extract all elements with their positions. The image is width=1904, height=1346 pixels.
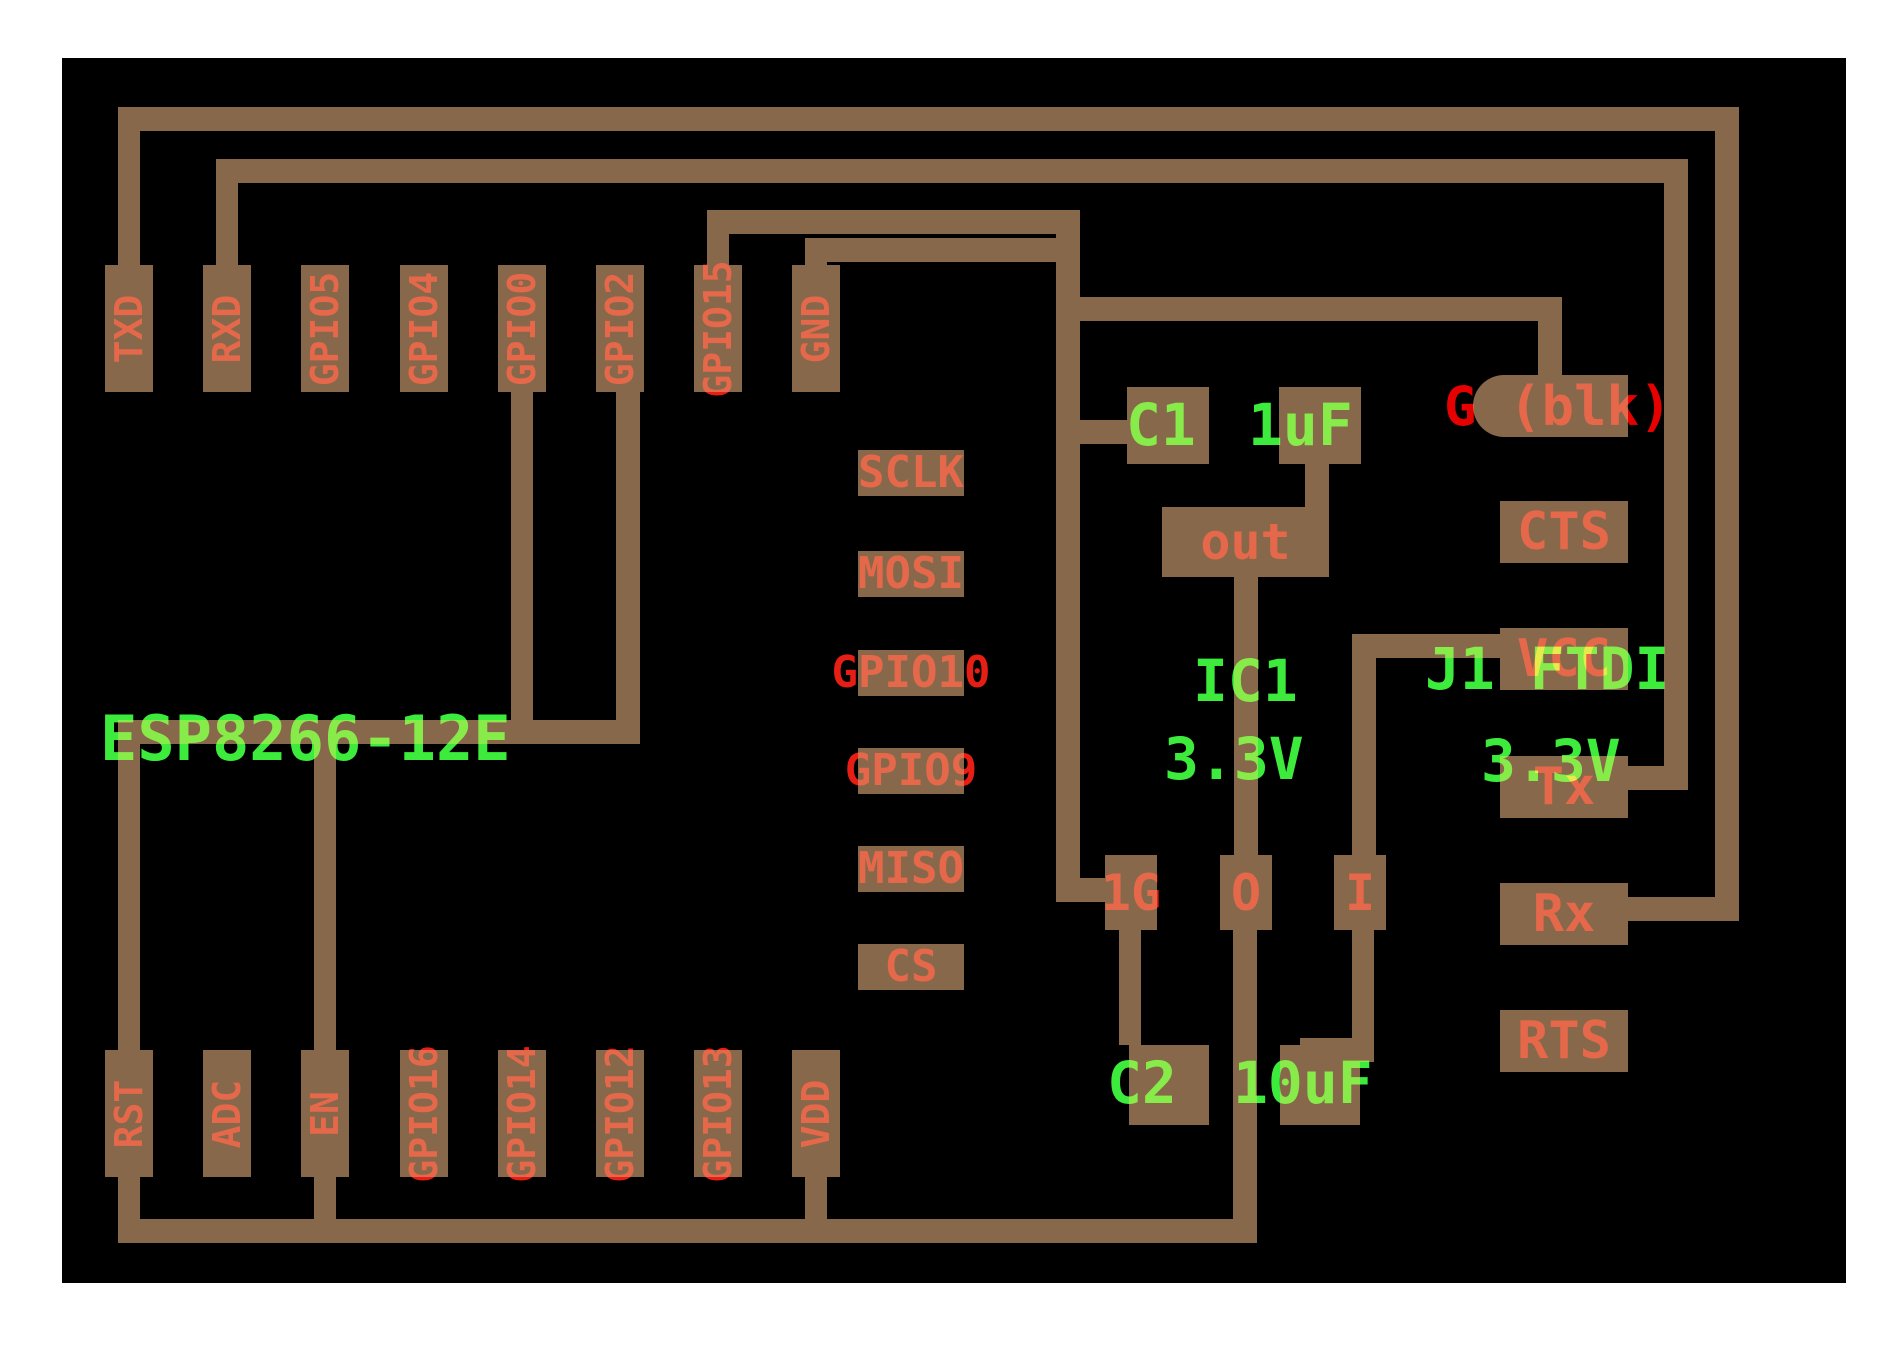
ftdi-pad-cts[interactable]: CTS [1500, 501, 1628, 563]
esp-pad-vdd[interactable]: VDD [792, 1050, 840, 1177]
ftdi-pad-ground-label: G (blk) [1444, 380, 1672, 434]
esp-pad-miso-label: MISO [858, 847, 964, 891]
esp-pad-gpio10[interactable]: GPIO10 [858, 650, 964, 696]
esp-pad-adc[interactable]: ADC [203, 1050, 251, 1177]
trace-gnd-horizontal[interactable] [805, 238, 1080, 262]
capacitor2-ref-label: C2 [1107, 1054, 1177, 1112]
esp-pad-gpio9-label: GPIO9 [845, 749, 977, 793]
esp-pad-gpio14[interactable]: GPIO14 [498, 1050, 546, 1177]
esp-pad-mosi[interactable]: MOSI [858, 551, 964, 597]
trace-gpio0-vertical[interactable] [511, 392, 533, 744]
trace-rst-top-vertical[interactable] [118, 744, 140, 1050]
trace-c1-to-out-vertical[interactable] [1305, 464, 1329, 507]
capacitor2-value-label: 10uF [1233, 1054, 1373, 1112]
esp-pad-gpio15-label: GPIO15 [699, 260, 737, 397]
esp-pad-gpio9[interactable]: GPIO9 [858, 748, 964, 794]
regulator-pin-o[interactable]: O [1220, 855, 1272, 930]
capacitor1-value-label: 1uF [1248, 396, 1353, 454]
esp-pad-gpio16[interactable]: GPIO16 [400, 1050, 448, 1177]
trace-txd-net-rx-connector[interactable] [1628, 897, 1739, 921]
esp-pad-gpio2[interactable]: GPIO2 [596, 265, 644, 392]
esp-pad-gpio12[interactable]: GPIO12 [596, 1050, 644, 1177]
trace-bottom-bus-horizontal[interactable] [118, 1219, 1257, 1243]
trace-rxd-net-tx-connector[interactable] [1628, 766, 1688, 790]
esp-pad-gpio4-label: GPIO4 [405, 271, 443, 385]
esp-pad-cs[interactable]: CS [858, 944, 964, 990]
esp-pad-gpio12-label: GPIO12 [601, 1045, 639, 1182]
trace-rxd-pad-stub[interactable] [216, 159, 238, 265]
ftdi-pad-cts-label: CTS [1517, 506, 1611, 558]
ftdi-pad-rts[interactable]: RTS [1500, 1010, 1628, 1072]
trace-txd-net-right-vertical[interactable] [1715, 107, 1739, 921]
esp-pad-sclk-label: SCLK [858, 451, 964, 495]
ftdi-pad-rts-label: RTS [1517, 1015, 1611, 1067]
trace-txd-net-top-horizontal[interactable] [118, 107, 1739, 131]
trace-rxd-net-top-horizontal[interactable] [216, 159, 1688, 183]
pcb-board: TXD RXD GPIO5 GPIO4 GPIO0 GPIO2 GPIO15 G… [62, 58, 1846, 1283]
regulator-out-pad-label: out [1200, 517, 1290, 567]
ftdi-pad-rx[interactable]: Rx [1500, 883, 1628, 945]
esp-pad-gpio5-label: GPIO5 [306, 271, 344, 385]
esp-pad-rst[interactable]: RST [105, 1050, 153, 1177]
trace-out-to-o-vertical[interactable] [1234, 577, 1258, 855]
esp-pad-vdd-label: VDD [797, 1079, 835, 1148]
esp-pad-gpio13[interactable]: GPIO13 [694, 1050, 742, 1177]
esp-pad-gnd-label: GND [797, 294, 835, 363]
ftdi-ref-label: J1 FTDI [1425, 640, 1669, 698]
regulator-ref-label: IC1 [1193, 652, 1298, 710]
esp-pad-adc-label: ADC [208, 1079, 246, 1148]
trace-txd-pad-stub[interactable] [118, 107, 140, 265]
regulator-pin-i[interactable]: I [1334, 855, 1386, 930]
esp-pad-txd[interactable]: TXD [105, 265, 153, 392]
esp-pad-rxd-label: RXD [208, 294, 246, 363]
trace-i-to-vcc-vertical[interactable] [1352, 634, 1376, 855]
trace-en-top-vertical[interactable] [314, 744, 336, 1050]
esp-pad-gpio5[interactable]: GPIO5 [301, 265, 349, 392]
regulator-value-label: 3.3V [1164, 730, 1304, 788]
regulator-pin-1g-label: 1G [1101, 868, 1161, 918]
capacitor1-ref-label: C1 [1126, 396, 1196, 454]
regulator-pin-1g[interactable]: 1G [1105, 855, 1157, 930]
esp-pad-gpio2-label: GPIO2 [601, 271, 639, 385]
esp-pad-en-label: EN [306, 1091, 344, 1137]
regulator-pin-o-label: O [1231, 868, 1261, 918]
esp-pad-mosi-label: MOSI [858, 552, 964, 596]
regulator-pin-i-label: I [1345, 868, 1375, 918]
esp-pad-gpio10-label: GPIO10 [832, 651, 991, 695]
trace-gpio15-horizontal[interactable] [707, 210, 1080, 234]
esp-module-label: ESP8266-12E [100, 708, 511, 770]
esp-pad-gnd[interactable]: GND [792, 265, 840, 392]
ftdi-value-label: 3.3V [1481, 732, 1621, 790]
esp-pad-gpio0[interactable]: GPIO0 [498, 265, 546, 392]
esp-pad-gpio16-label: GPIO16 [405, 1045, 443, 1182]
trace-gnd-gblk-vertical[interactable] [1538, 297, 1562, 375]
trace-vdd-bottom-stub[interactable] [805, 1177, 827, 1219]
esp-pad-sclk[interactable]: SCLK [858, 450, 964, 496]
esp-pad-gpio13-label: GPIO13 [699, 1045, 737, 1182]
trace-gnd-gblk-horizontal[interactable] [1080, 297, 1562, 321]
trace-gnd-c1-stub[interactable] [1080, 420, 1127, 444]
esp-pad-en[interactable]: EN [301, 1050, 349, 1177]
trace-gnd-main-vertical[interactable] [1056, 210, 1080, 902]
esp-pad-gpio14-label: GPIO14 [503, 1045, 541, 1182]
esp-pad-rst-label: RST [110, 1079, 148, 1148]
trace-rst-bottom-vertical[interactable] [118, 1177, 140, 1243]
esp-pad-cs-label: CS [885, 945, 938, 989]
trace-gpio2-vertical[interactable] [616, 392, 640, 744]
esp-pad-gpio15[interactable]: GPIO15 [694, 265, 742, 392]
esp-pad-rxd[interactable]: RXD [203, 265, 251, 392]
esp-pad-txd-label: TXD [110, 294, 148, 363]
esp-pad-miso[interactable]: MISO [858, 846, 964, 892]
trace-en-bottom-stub[interactable] [314, 1177, 336, 1219]
esp-pad-gpio4[interactable]: GPIO4 [400, 265, 448, 392]
esp-pad-gpio0-label: GPIO0 [503, 271, 541, 385]
ftdi-pad-rx-label: Rx [1533, 888, 1596, 940]
trace-1g-to-c2-stub[interactable] [1119, 930, 1141, 1045]
regulator-out-pad[interactable]: out [1162, 507, 1329, 577]
